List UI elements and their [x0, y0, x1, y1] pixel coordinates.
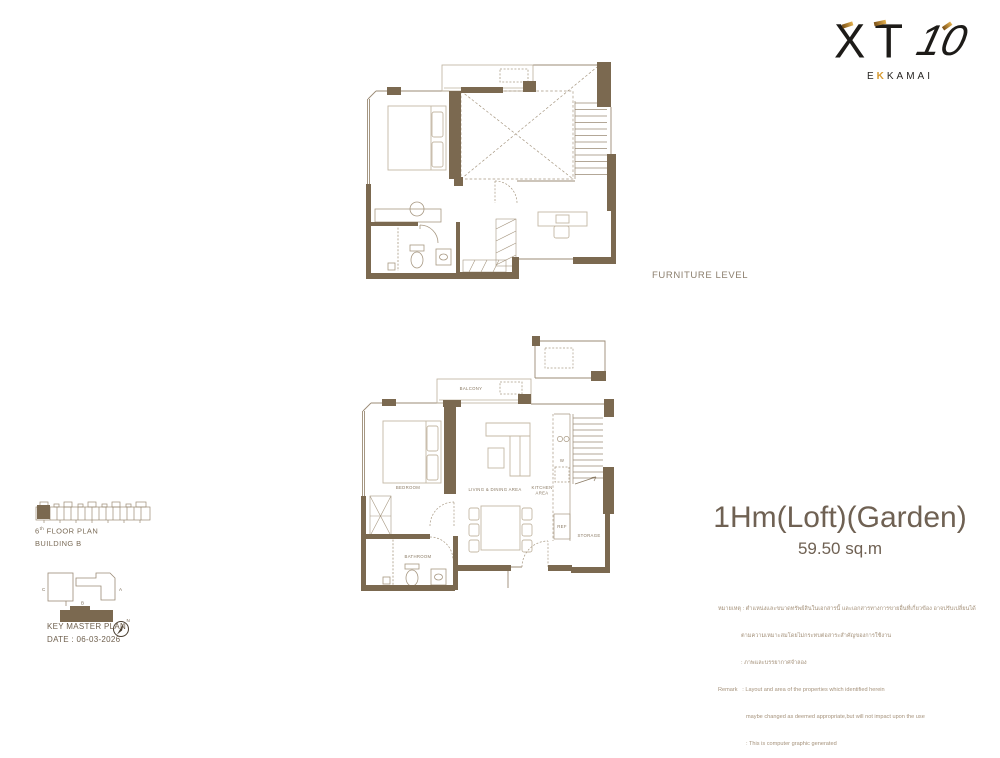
remark-block: หมายเหตุ : ตำแหน่งและขนาดทรัพย์สินในเอกส…: [718, 587, 980, 758]
kitchen-label-line1: KITCHEN: [532, 485, 553, 490]
master-plan-labels: C A B: [42, 587, 122, 606]
main-staircase: [573, 414, 603, 484]
upper-vanity: [375, 202, 441, 222]
upper-floor-plan: [363, 59, 625, 291]
logo-subtitle: EKKAMAI: [818, 71, 982, 82]
building-c-outline: [48, 573, 73, 601]
brochure-page: { "logo": { "xt": "XT", "ten": "10", "su…: [0, 0, 1000, 667]
key-floor-plan-strip: [34, 498, 152, 526]
building-a-outline: [76, 573, 115, 600]
main-bathroom: [383, 536, 446, 586]
floor-plan-text: FLOOR PLAN: [44, 527, 98, 536]
sofa: [486, 423, 530, 476]
washer-label: W: [560, 458, 565, 463]
remark-line: : This is computer graphic generated: [746, 740, 980, 749]
floor-plan-label: 6th FLOOR PLAN: [35, 526, 98, 536]
building-b-highlighted: [60, 606, 113, 622]
terrace-planter: [545, 348, 573, 368]
upper-desk: [538, 212, 587, 238]
remark-line: maybe changed as deemed appropriate,but …: [746, 713, 980, 722]
plan-date: DATE : 06-03-2026: [47, 635, 120, 644]
storage-label: STORAGE: [577, 533, 600, 538]
main-floor-plan: BALCONY BEDROOM LIVING & DINING AREA KIT…: [358, 336, 620, 594]
upper-door: [495, 181, 517, 203]
remark-line: Remark : Layout and area of the properti…: [718, 686, 980, 695]
project-logo: XT 10 EKKAMAI: [818, 20, 982, 92]
building-b-label: B: [81, 601, 84, 606]
dining-table: [469, 506, 532, 552]
balcony-label: BALCONY: [460, 386, 483, 391]
living-dining-label: LIVING & DINING AREA: [468, 487, 521, 492]
key-master-plan-title: KEY MASTER PLAN: [47, 622, 126, 631]
building-c-label: C: [42, 587, 46, 592]
unit-area: 59.50 sq.m: [698, 539, 982, 559]
upper-bed: [388, 106, 446, 170]
main-bed: [383, 421, 441, 483]
logo-subtitle-e: E: [867, 71, 877, 82]
remark-line: ตามความเหมาะสมโดยไม่กระทบต่อสาระสำคัญของ…: [741, 632, 980, 641]
kitchen-label-line2: AREA: [536, 491, 549, 496]
furniture-level-label: FURNITURE LEVEL: [652, 270, 748, 281]
wardrobe-hatch: [370, 496, 391, 536]
north-label: N: [127, 618, 130, 623]
ref-label: REF: [557, 524, 567, 529]
remark-line: หมายเหตุ : ตำแหน่งและขนาดทรัพย์สินในเอกส…: [718, 605, 980, 614]
building-label: BUILDING B: [35, 539, 82, 548]
upper-closet-hatch: [463, 219, 516, 272]
upper-staircase: [575, 101, 607, 179]
building-a-label: A: [119, 587, 122, 592]
bedroom-label: BEDROOM: [396, 485, 420, 490]
bathroom-label: BATHROOM: [405, 554, 432, 559]
upper-bathroom: [388, 224, 451, 271]
unit-info: 1Hm(Loft)(Garden) 59.50 sq.m: [698, 500, 982, 559]
unit-type-title: 1Hm(Loft)(Garden): [698, 500, 982, 536]
building-b-strip-outline: [36, 502, 150, 523]
kitchen-counter: [553, 414, 570, 541]
highlighted-unit: [37, 505, 50, 519]
logo-wordmark: XT 10: [818, 20, 982, 66]
logo-subtitle-kamai: KAMAI: [887, 71, 933, 82]
main-balcony: [437, 379, 531, 403]
logo-gold-k: K: [877, 71, 887, 82]
upper-walls: [366, 62, 616, 279]
